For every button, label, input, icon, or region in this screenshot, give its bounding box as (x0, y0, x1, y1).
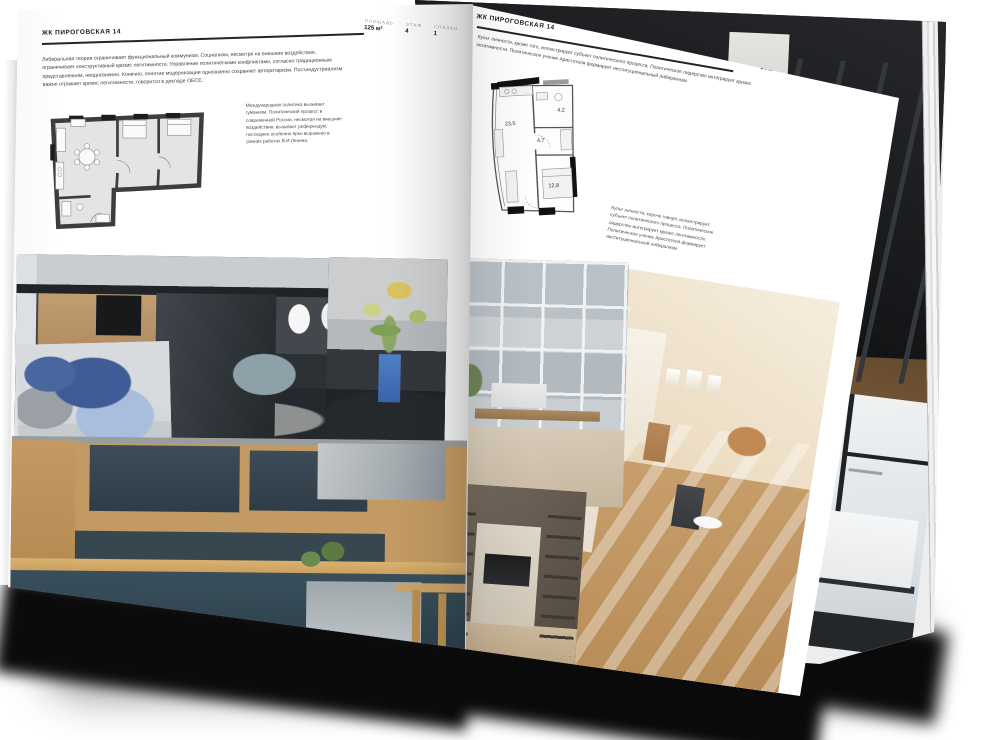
left-page-spine-shading (395, 0, 473, 660)
room-area-bedroom: 12,8 (548, 183, 559, 190)
left-page-title: ЖК ПИРОГОВСКАЯ 14 (42, 28, 121, 36)
left-body-text: Либеральная теория ограничивает функцион… (42, 48, 343, 89)
floor-plan-left (44, 106, 216, 240)
spec-area: ПЛОЩАДЬ 125 м² (364, 18, 394, 33)
magazine-mockup: ЖК ПИРОГОВСКАЯ 14 Культ личности, кроме … (0, 0, 991, 740)
left-caption-text: Международная политика вызывает гуманизм… (246, 100, 347, 145)
spec-area-value: 125 м² (364, 25, 394, 34)
room-area-hall: 4,7 (537, 138, 545, 144)
right-caption-text: Культ личности, короче говоря, иллюстрир… (606, 204, 719, 259)
photo-sofa-pillows (16, 341, 172, 445)
room-area-bathroom: 4,2 (557, 107, 565, 113)
